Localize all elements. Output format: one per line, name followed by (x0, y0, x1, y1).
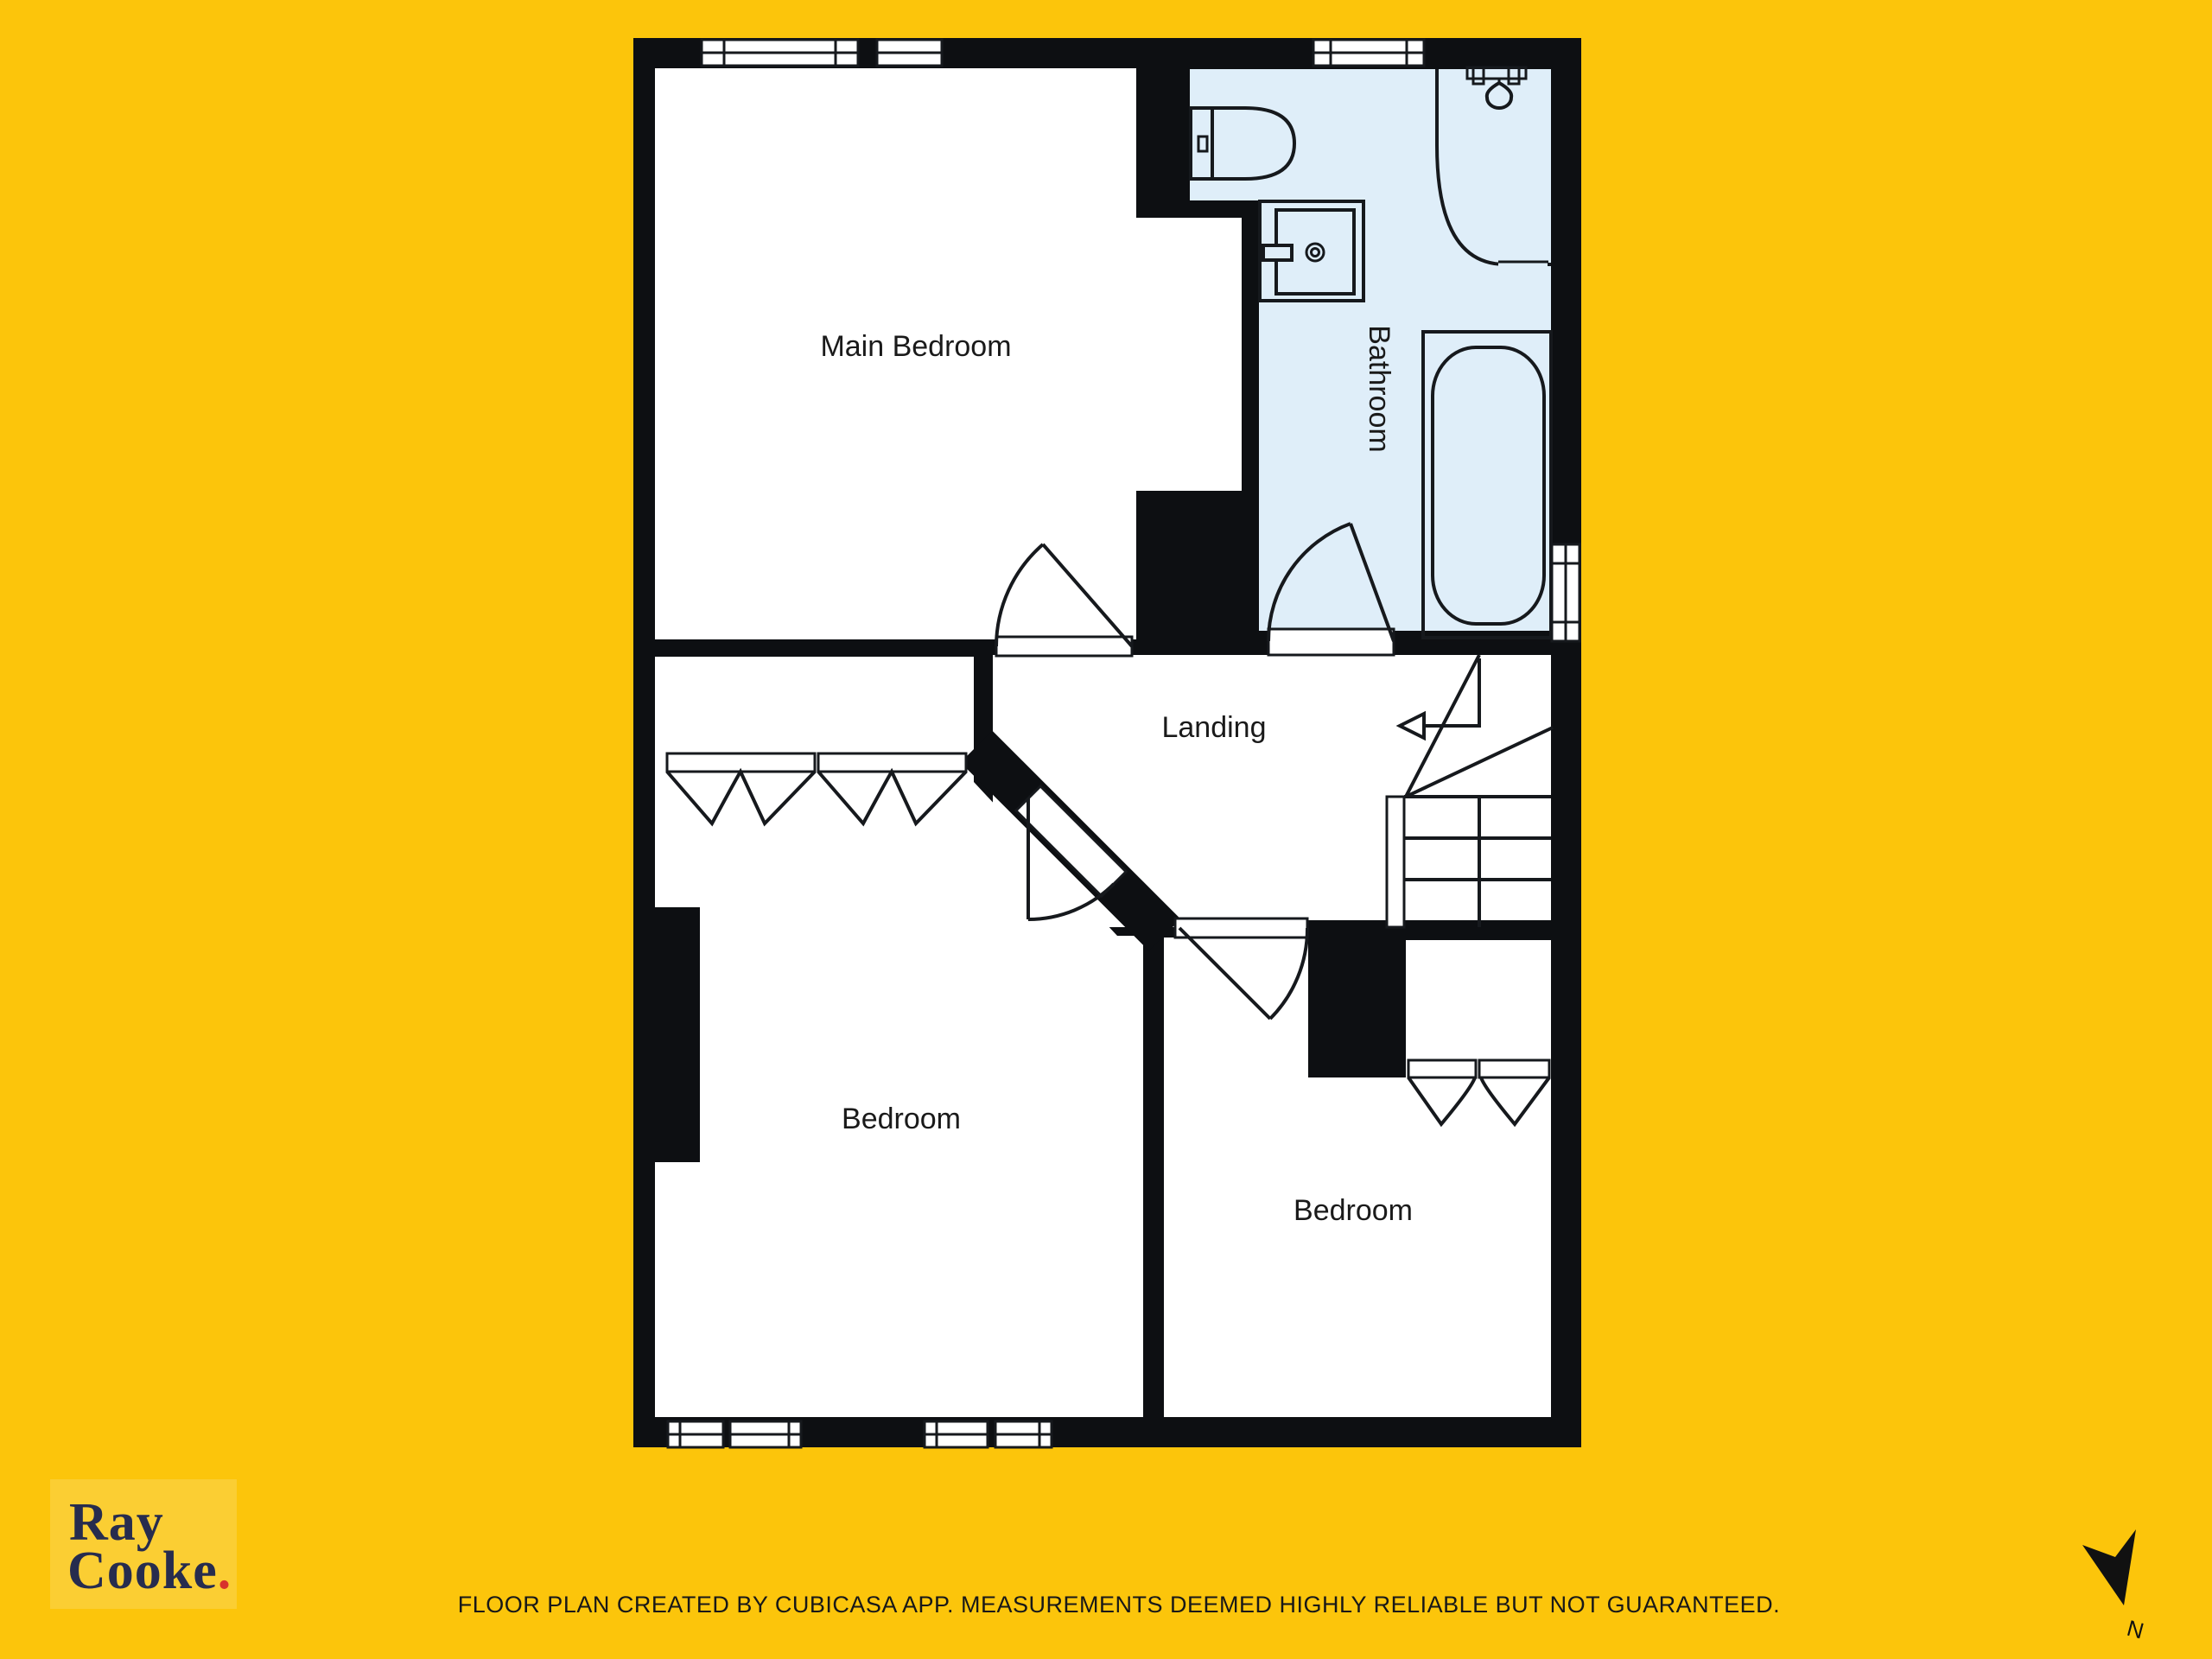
stairs-bottom-wall (1308, 920, 1551, 940)
main-bedroom-door-threshold (996, 637, 1132, 656)
room-label-bedroom-left: Bedroom (842, 1103, 961, 1135)
room-label-bathroom: Bathroom (1363, 325, 1395, 452)
footer-disclaimer: FLOOR PLAN CREATED BY CUBICASA APP. MEAS… (458, 1592, 1780, 1618)
north-label: N (2124, 1615, 2146, 1644)
bathroom-area (1259, 69, 1551, 631)
room-areas (655, 68, 1551, 1417)
window (1552, 544, 1580, 641)
window (925, 1421, 988, 1447)
room-label-bedroom-right: Bedroom (1294, 1194, 1413, 1227)
window (995, 1421, 1052, 1447)
main-bedroom-area-ext (1136, 218, 1242, 491)
window (1313, 40, 1424, 66)
bathroom-door-threshold (1268, 629, 1394, 655)
window (668, 1421, 723, 1447)
window (702, 40, 858, 66)
wall-block (1308, 940, 1406, 1077)
closet-track (1408, 1060, 1476, 1077)
landing-area (993, 655, 1551, 927)
chimney-breast (655, 907, 700, 1162)
room-label-landing: Landing (1161, 711, 1266, 744)
closet-track (1479, 1060, 1549, 1077)
north-arrow-icon: N (2082, 1529, 2146, 1644)
stairs-stringer (1387, 797, 1404, 927)
toilet-icon (1191, 108, 1294, 179)
floor-plan: Main Bedroom Bathroom Landing Bedroom Be… (633, 38, 1581, 1447)
window (877, 40, 942, 66)
brand-logo: Ray Cooke. (50, 1479, 237, 1609)
bedroom-right-door-threshold (1175, 918, 1307, 938)
window (730, 1421, 801, 1447)
logo-line2: Cooke. (67, 1541, 232, 1600)
room-label-main-bedroom: Main Bedroom (820, 330, 1011, 363)
floor-plan-page: Main Bedroom Bathroom Landing Bedroom Be… (0, 0, 2212, 1659)
